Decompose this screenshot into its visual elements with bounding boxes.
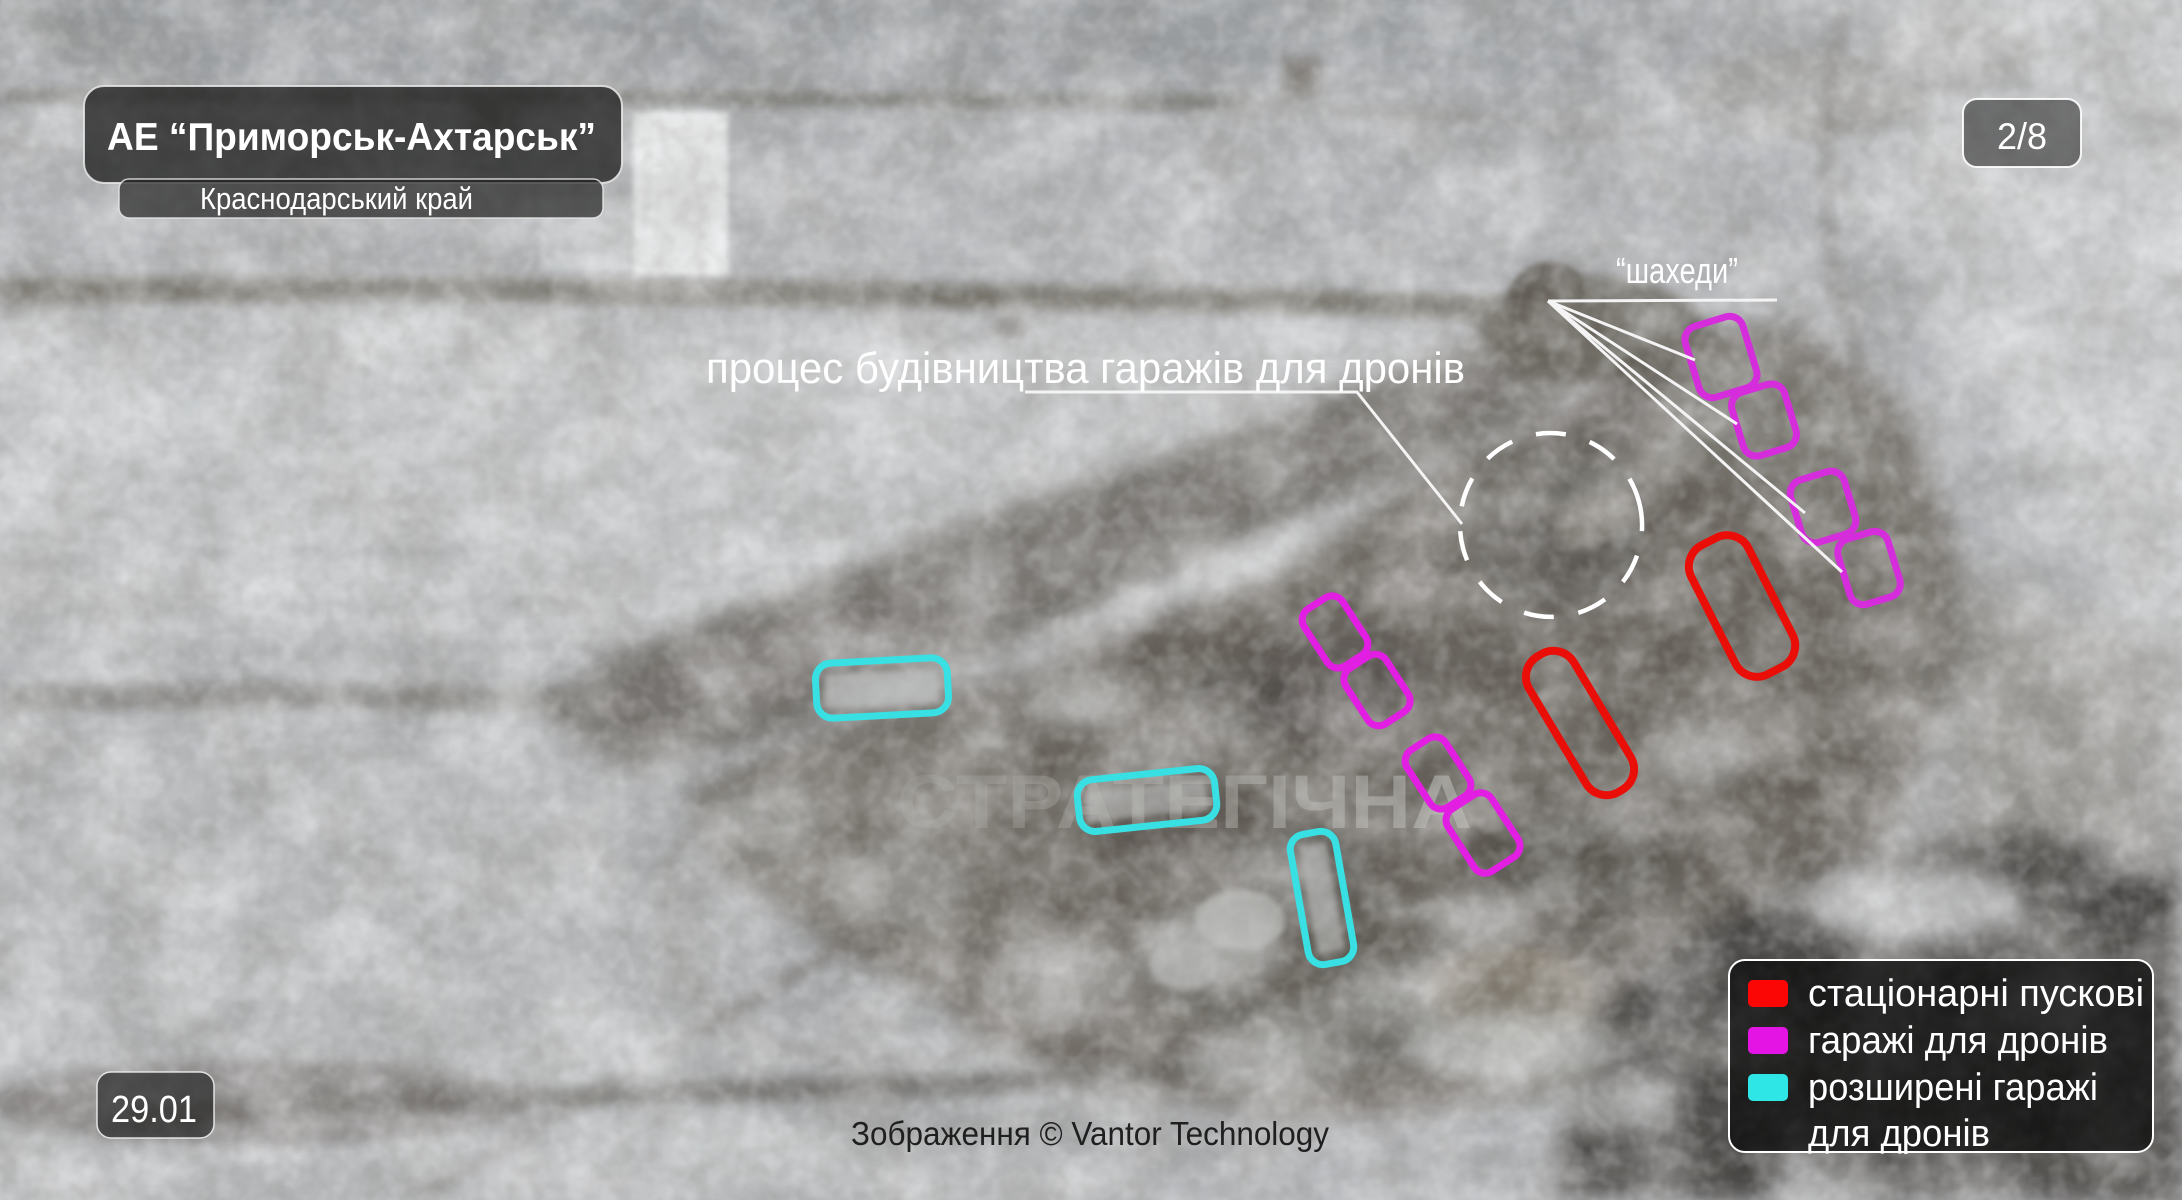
svg-text:стаціонарні пускові: стаціонарні пускові [1808,973,2144,1015]
svg-text:АЕ “Приморськ-Ахтарськ”: АЕ “Приморськ-Ахтарськ” [107,116,596,159]
svg-text:для дронів: для дронів [1808,1113,1990,1155]
svg-text:Краснодарський край: Краснодарський край [200,181,473,216]
svg-text:розширені гаражі: розширені гаражі [1808,1067,2098,1109]
svg-text:“шахеди”: “шахеди” [1616,250,1738,291]
svg-text:гаражі для дронів: гаражі для дронів [1808,1020,2108,1062]
svg-text:Strat: Strat [645,157,729,201]
svg-text:процес будівництва гаражів для: процес будівництва гаражів для дронів [706,344,1465,393]
svg-text:Зображення © Vantor Technology: Зображення © Vantor Technology [851,1115,1329,1152]
svg-text:29.01: 29.01 [111,1089,197,1131]
svg-text:2/8: 2/8 [1997,116,2047,157]
